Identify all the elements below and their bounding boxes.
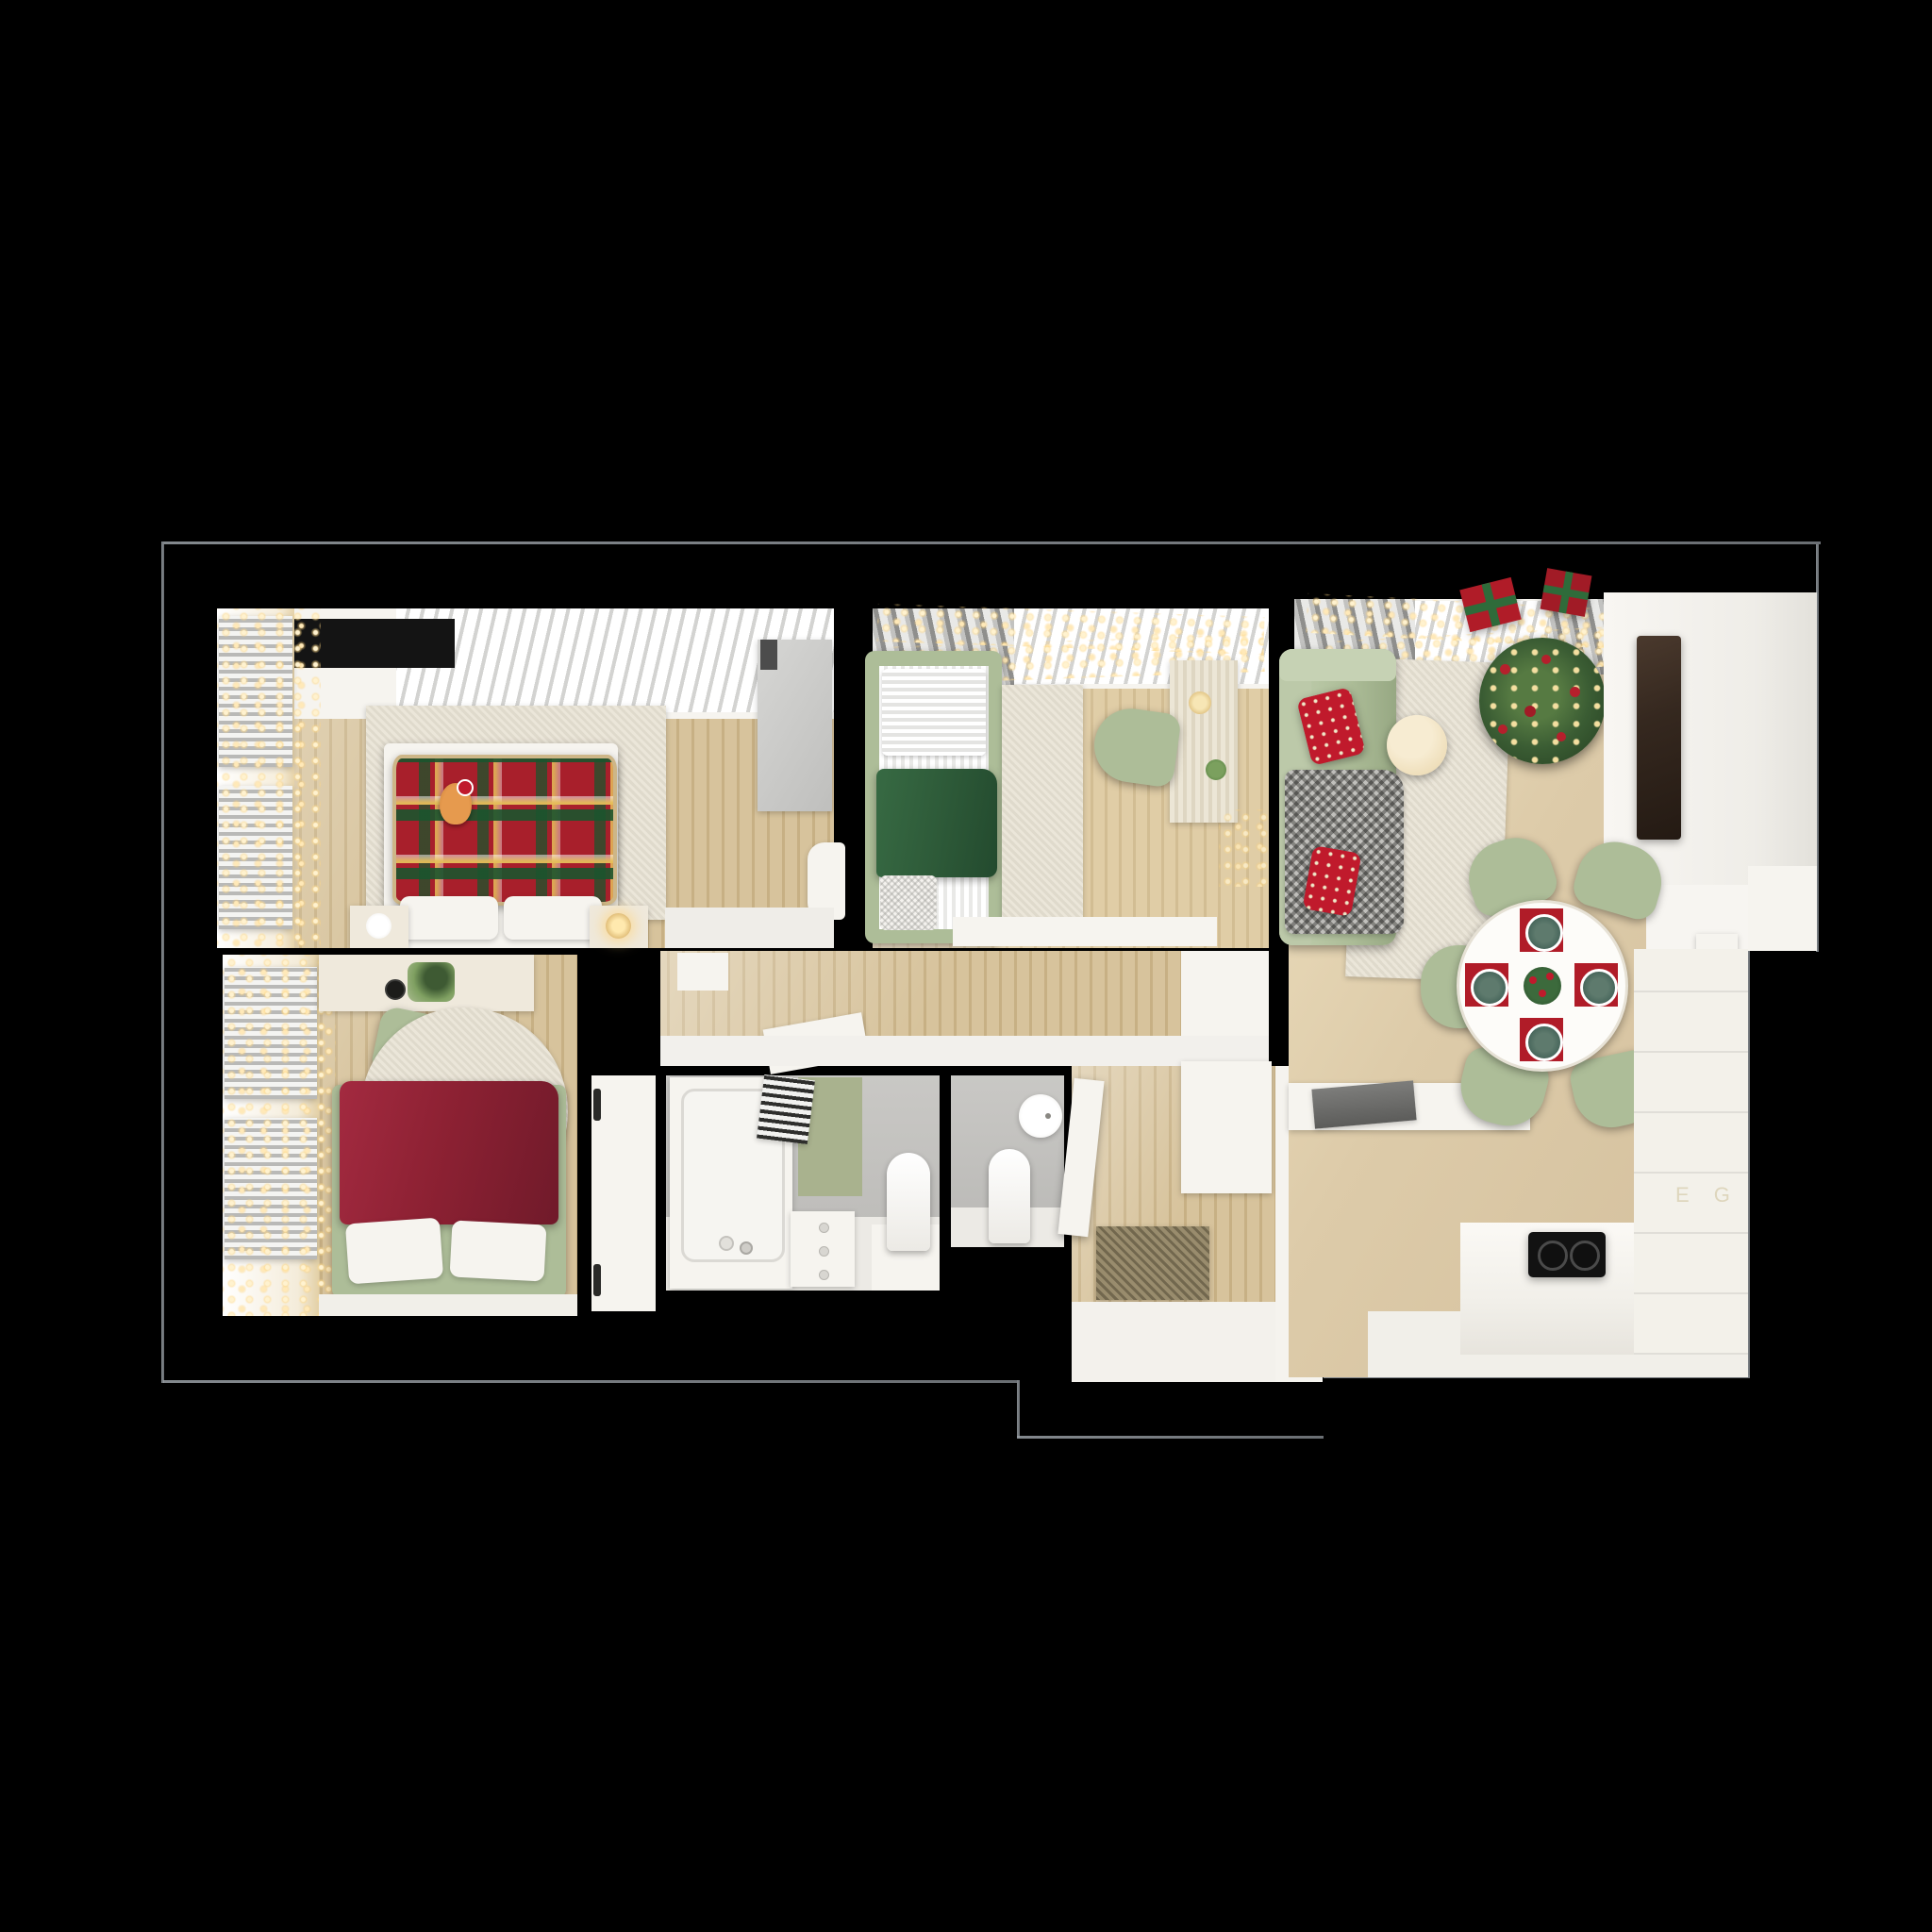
plate-north	[1525, 914, 1563, 952]
outer-wall-step-edge	[1017, 1380, 1020, 1438]
wc	[951, 1075, 1064, 1247]
gift-box-2	[1541, 568, 1592, 617]
bathtub-drain-icon	[719, 1236, 734, 1251]
cat-with-santa-hat	[440, 783, 472, 824]
master-window-string-lights	[217, 608, 321, 948]
bedroom2-desk-plant	[408, 962, 455, 1002]
tree-ornament-5	[1498, 724, 1507, 734]
kids-runner-rug	[1002, 685, 1083, 923]
kitchen-tall-cabinet-fridge: E G	[1634, 949, 1748, 1355]
wc-round-sink	[1019, 1094, 1062, 1138]
kids-bed-green-blanket	[876, 769, 997, 877]
plate-south	[1525, 1024, 1563, 1061]
wc-sink-drain-icon	[1045, 1113, 1051, 1119]
kids-bed-pillow	[882, 669, 986, 756]
drawer-knob-1	[819, 1223, 829, 1233]
bedroom2-burgundy-blanket	[340, 1081, 558, 1224]
wreath-berry-1	[1529, 976, 1537, 984]
bedroom2-floor-strip	[319, 1294, 577, 1316]
bathtub-faucet-icon	[740, 1241, 753, 1255]
sofa-armrest-top	[1279, 649, 1396, 681]
bathroom-drawer-unit	[791, 1211, 855, 1287]
outer-wall-bottom-mid-edge	[1017, 1436, 1324, 1439]
wreath-berry-2	[1546, 973, 1554, 980]
table-centerpiece-wreath	[1524, 967, 1561, 1005]
master-bedroom	[217, 608, 834, 948]
santa-hat-icon	[457, 779, 474, 796]
tree-ornament-6	[1557, 732, 1566, 741]
kids-desk-candle	[1189, 691, 1211, 714]
master-bed-tartan-blanket	[392, 755, 617, 906]
bathroom	[666, 1075, 940, 1291]
master-pillow-right	[504, 896, 602, 940]
plate-east	[1580, 969, 1618, 1007]
master-lamp-gold	[606, 913, 631, 939]
kids-bedroom	[873, 608, 1269, 948]
entry-hall	[1072, 1066, 1323, 1382]
christmas-tree	[1479, 638, 1606, 764]
door-hinge-top-icon	[593, 1089, 601, 1121]
floor-plan-render: E G	[0, 0, 1932, 1932]
dining-table	[1457, 900, 1628, 1072]
outer-wall-bottom-left-edge	[163, 1380, 1017, 1383]
wc-toilet	[989, 1149, 1030, 1243]
plate-west	[1471, 969, 1508, 1007]
bedroom2-open-door	[591, 1075, 656, 1311]
hallway-storage-block	[1181, 951, 1269, 1036]
cooktop-burner-left	[1538, 1241, 1568, 1271]
living-sofa	[1279, 649, 1396, 945]
kids-desk	[1170, 660, 1238, 823]
tv-wall-unit	[1604, 592, 1817, 885]
living-coffee-table	[1387, 715, 1447, 775]
entry-open-door	[1058, 1078, 1104, 1237]
bathroom-striped-towel	[757, 1074, 815, 1144]
entry-doormat	[1096, 1226, 1209, 1300]
tv	[1637, 636, 1681, 840]
cooktop-burner-right	[1570, 1241, 1600, 1271]
master-wardrobe-dark-box	[760, 640, 777, 670]
kids-bottom-board	[953, 917, 1217, 946]
hallway-south-wall-face	[660, 1036, 1269, 1066]
hallway-pillar	[677, 953, 728, 991]
bathroom-toilet	[887, 1153, 930, 1251]
entry-cabinet	[1181, 1061, 1272, 1193]
bedroom2-desk-clock	[385, 979, 406, 1000]
kids-light-curtain	[1219, 809, 1269, 887]
tree-ornament-4	[1524, 706, 1536, 717]
drawer-knob-2	[819, 1246, 829, 1257]
screenshot-root: { "image": { "kind": "photorealistic top…	[0, 0, 1932, 1932]
master-pillow-left	[400, 896, 498, 940]
bedroom2-pillow-left	[345, 1218, 443, 1285]
outer-wall-left-edge	[161, 541, 164, 1383]
door-hinge-bottom-icon	[593, 1264, 601, 1296]
right-wall-niche-cabinet	[1748, 866, 1817, 951]
hallway	[660, 951, 1269, 1066]
induction-cooktop	[1528, 1232, 1606, 1277]
master-lamp-white	[366, 913, 391, 939]
kids-desk-plant	[1206, 759, 1226, 780]
fridge-logo: E G	[1675, 1183, 1740, 1207]
tree-ornament-2	[1541, 655, 1551, 664]
kids-desk-chair	[1090, 704, 1182, 788]
drawer-knob-3	[819, 1270, 829, 1280]
tree-ornament-1	[1500, 664, 1510, 675]
wreath-berry-3	[1539, 990, 1546, 997]
master-low-dresser	[665, 908, 834, 948]
bedroom-2	[223, 955, 577, 1316]
kids-bed-knit-throw	[880, 875, 937, 930]
outer-wall-top-edge	[163, 541, 1821, 544]
bedroom2-pillow-right	[449, 1220, 546, 1281]
tree-ornament-3	[1570, 687, 1580, 697]
